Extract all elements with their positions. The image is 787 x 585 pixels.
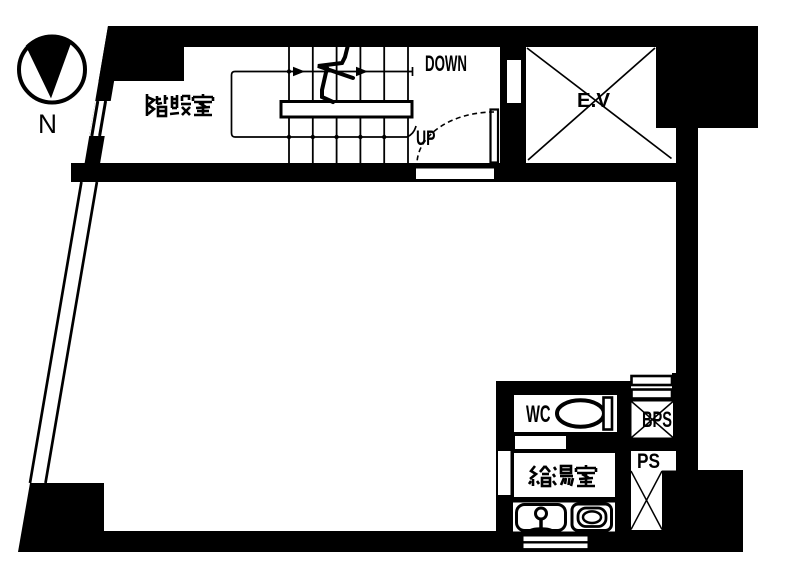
svg-text:N: N [38, 109, 57, 139]
svg-text:WC: WC [526, 401, 551, 428]
svg-text:UP: UP [416, 127, 436, 150]
svg-text:PS: PS [637, 450, 660, 473]
svg-text:DOWN: DOWN [425, 51, 467, 76]
svg-text:E.V: E.V [577, 90, 611, 112]
svg-text:BPS: BPS [642, 407, 672, 432]
